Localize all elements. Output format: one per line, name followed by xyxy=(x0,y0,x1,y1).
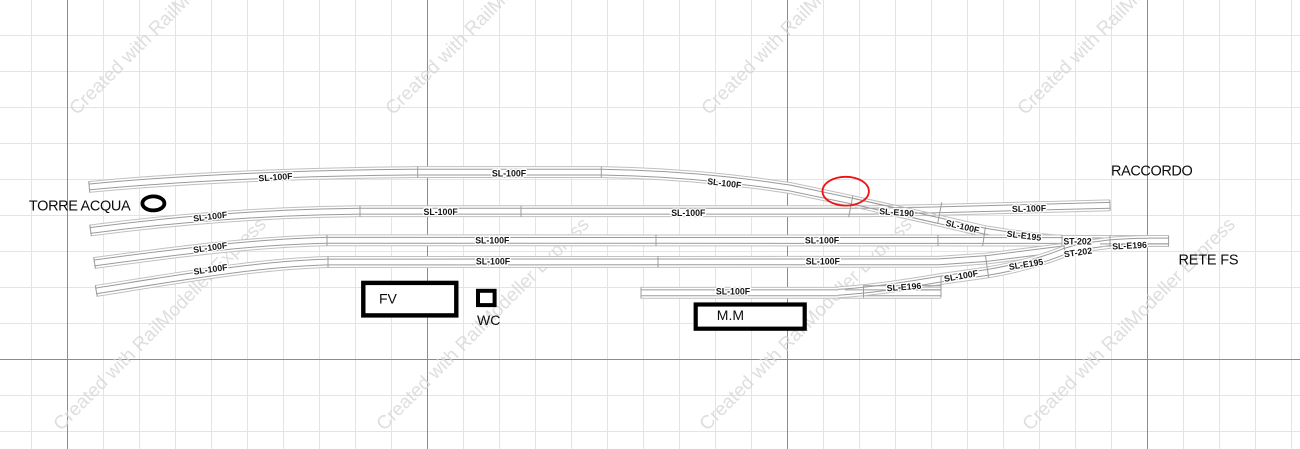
svg-text:M.M: M.M xyxy=(717,307,744,323)
svg-text:ST-202: ST-202 xyxy=(1063,236,1091,246)
svg-text:SL-100F: SL-100F xyxy=(492,169,527,179)
svg-text:SL-100F: SL-100F xyxy=(475,235,510,245)
svg-text:SL-100F: SL-100F xyxy=(1012,203,1047,214)
svg-text:SL-100F: SL-100F xyxy=(805,235,840,245)
svg-text:TORRE ACQUA: TORRE ACQUA xyxy=(29,199,131,215)
svg-text:SL-100F: SL-100F xyxy=(716,286,751,296)
svg-text:WC: WC xyxy=(477,312,500,328)
svg-text:RETE FS: RETE FS xyxy=(1179,252,1239,268)
svg-text:SL-E196: SL-E196 xyxy=(1112,240,1147,252)
svg-text:RACCORDO: RACCORDO xyxy=(1111,163,1193,179)
svg-text:SL-100F: SL-100F xyxy=(806,257,841,267)
svg-text:SL-100F: SL-100F xyxy=(671,208,706,218)
svg-text:FV: FV xyxy=(379,291,398,307)
svg-text:SL-100F: SL-100F xyxy=(476,257,511,267)
svg-text:SL-100F: SL-100F xyxy=(423,207,458,217)
